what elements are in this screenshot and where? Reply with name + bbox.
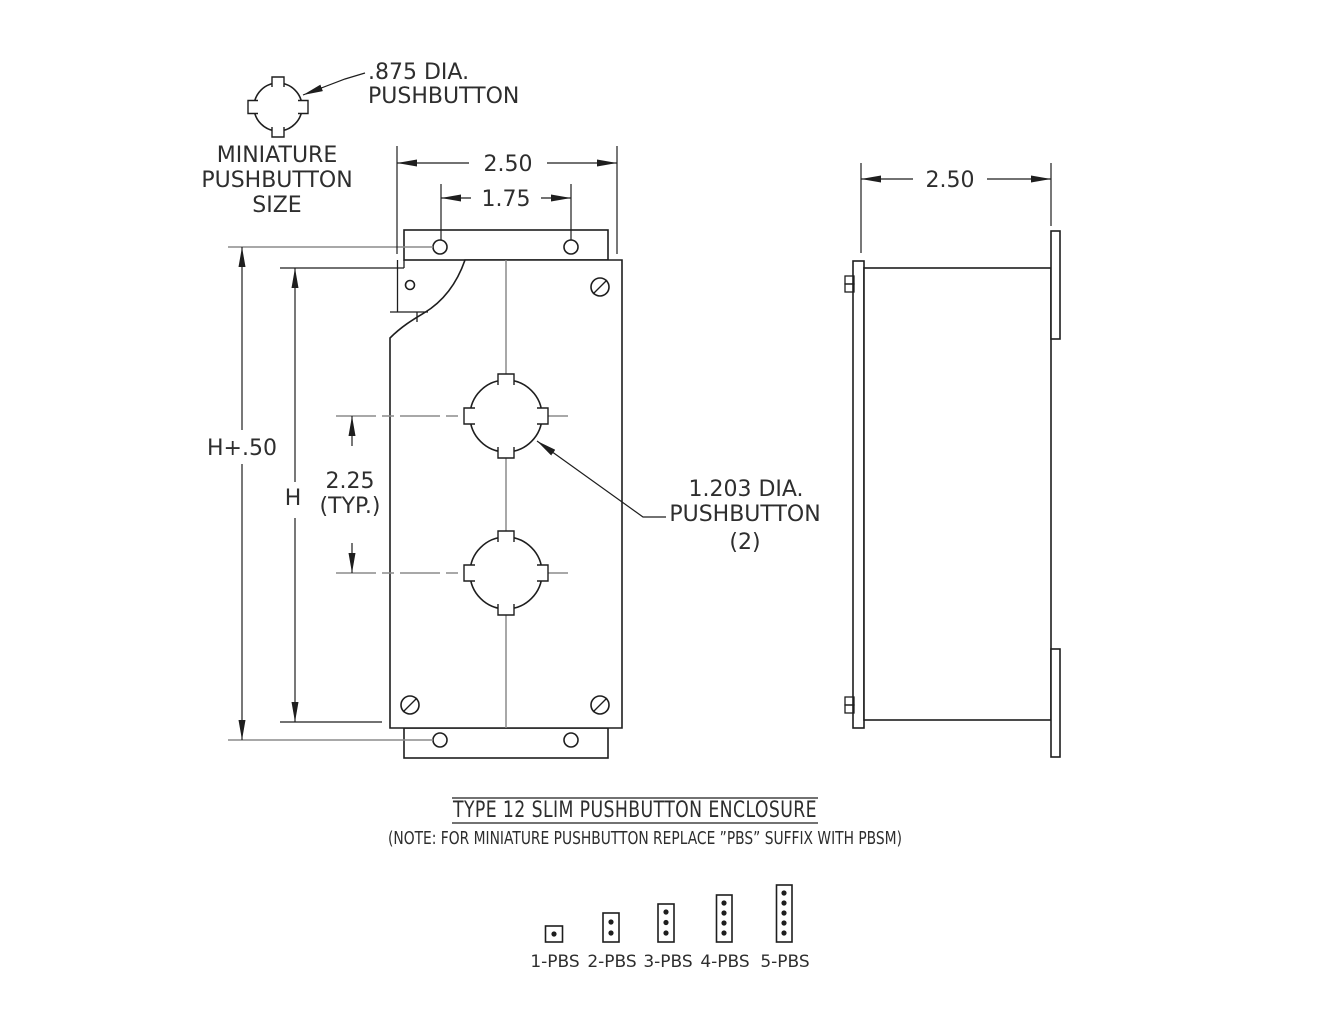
- dim-button-spacing: 2.25 (TYP.): [320, 416, 381, 573]
- variant-label: 4-PBS: [700, 952, 749, 972]
- dim-hole-spacing-label: 1.75: [482, 187, 531, 212]
- button-dot: [721, 920, 726, 925]
- pushbutton-hole-circle: [470, 380, 542, 452]
- mounting-hole: [433, 240, 447, 254]
- notch-bottom: [272, 127, 284, 137]
- pushbutton-callout-line1: 1.203 DIA.: [688, 477, 803, 502]
- enclosure-body-side: [864, 268, 1051, 720]
- variant-label: 3-PBS: [643, 952, 692, 972]
- button-dot: [721, 900, 726, 905]
- pushbutton-callout-line2: PUSHBUTTON: [669, 502, 820, 527]
- button-dot: [663, 920, 668, 925]
- notch-top: [498, 531, 514, 542]
- notch-top: [498, 374, 514, 385]
- dim-overall-height-label: H+.50: [207, 436, 277, 461]
- variant-symbol-2pbs: 2-PBS: [587, 913, 636, 972]
- variant-label: 2-PBS: [587, 952, 636, 972]
- drawing-title: TYPE 12 SLIM PUSHBUTTON ENCLOSURE: [452, 798, 817, 823]
- variant-symbol-3pbs: 3-PBS: [643, 904, 692, 972]
- dim-button-spacing-qualifier: (TYP.): [320, 494, 381, 519]
- drawing-note: (NOTE: FOR MINIATURE PUSHBUTTON REPLACE …: [388, 828, 902, 849]
- cutaway-hole: [406, 281, 415, 290]
- button-dot: [781, 900, 786, 905]
- pushbutton-hole-circle: [470, 537, 542, 609]
- mini-caption-line2: PUSHBUTTON: [201, 168, 352, 193]
- button-dot: [721, 910, 726, 915]
- notch-top: [272, 77, 284, 87]
- dim-height-label: H: [285, 486, 302, 511]
- mini-caption-line3: SIZE: [252, 193, 301, 218]
- mounting-hole: [564, 733, 578, 747]
- variant-symbol-1pbs: 1-PBS: [530, 926, 579, 972]
- variant-label: 5-PBS: [760, 952, 809, 972]
- variant-symbols: 1-PBS 2-PBS 3-PBS 4-PBS: [530, 885, 809, 972]
- mini-callout-line1: .875 DIA.: [368, 60, 469, 85]
- button-dot: [781, 930, 786, 935]
- dim-depth: 2.50: [861, 163, 1051, 253]
- notch-bottom: [498, 604, 514, 615]
- mounting-hole: [433, 733, 447, 747]
- notch-bottom: [498, 447, 514, 458]
- dim-overall-height: H+.50: [207, 247, 277, 740]
- drawing-canvas: .875 DIA. PUSHBUTTON MINIATURE PUSHBUTTO…: [0, 0, 1320, 1020]
- button-dot: [663, 909, 668, 914]
- pushbutton-callout-line3: (2): [729, 530, 760, 555]
- button-dot: [781, 910, 786, 915]
- notch-right: [537, 565, 548, 581]
- button-dot: [721, 930, 726, 935]
- notch-left: [248, 101, 258, 114]
- button-dot: [663, 930, 668, 935]
- button-dot: [781, 920, 786, 925]
- variant-label: 1-PBS: [530, 952, 579, 972]
- button-dot: [608, 930, 613, 935]
- drawing-sheet: .875 DIA. PUSHBUTTON MINIATURE PUSHBUTTO…: [0, 0, 1320, 1020]
- notch-right: [298, 101, 308, 114]
- callout-leader-arrow: [303, 73, 365, 95]
- notch-left: [464, 408, 475, 424]
- variant-symbol-5pbs: 5-PBS: [760, 885, 809, 972]
- button-dot: [551, 931, 556, 936]
- dim-depth-label: 2.50: [926, 168, 975, 193]
- miniature-pushbutton-symbol: .875 DIA. PUSHBUTTON MINIATURE PUSHBUTTO…: [201, 60, 519, 218]
- side-view: 2.50: [845, 163, 1060, 757]
- back-panel-edge: [853, 261, 864, 728]
- notch-right: [537, 408, 548, 424]
- variant-symbol-4pbs: 4-PBS: [700, 895, 749, 972]
- enclosure-box: [603, 913, 619, 942]
- cover-screw-bottom-right: [591, 696, 609, 714]
- cover-flange-bottom-edge: [1051, 649, 1060, 757]
- title-block: TYPE 12 SLIM PUSHBUTTON ENCLOSURE (NOTE:…: [388, 798, 902, 849]
- cover-screw-bottom-left: [401, 696, 419, 714]
- notch-left: [464, 565, 475, 581]
- front-view: 2.50 1.75 H+.50 H 2.25: [207, 146, 821, 758]
- mini-callout-line2: PUSHBUTTON: [368, 84, 519, 109]
- mounting-hole: [564, 240, 578, 254]
- corner-cutaway-detail: [390, 260, 428, 322]
- mini-caption-line1: MINIATURE: [217, 143, 337, 168]
- button-dot: [781, 890, 786, 895]
- button-dot: [608, 919, 613, 924]
- miniature-pushbutton-circle: [254, 83, 302, 131]
- cover-flange-top-edge: [1051, 231, 1060, 339]
- cover-screw-top-right: [591, 278, 609, 296]
- dim-button-spacing-label: 2.25: [326, 469, 375, 494]
- dim-width-label: 2.50: [484, 152, 533, 177]
